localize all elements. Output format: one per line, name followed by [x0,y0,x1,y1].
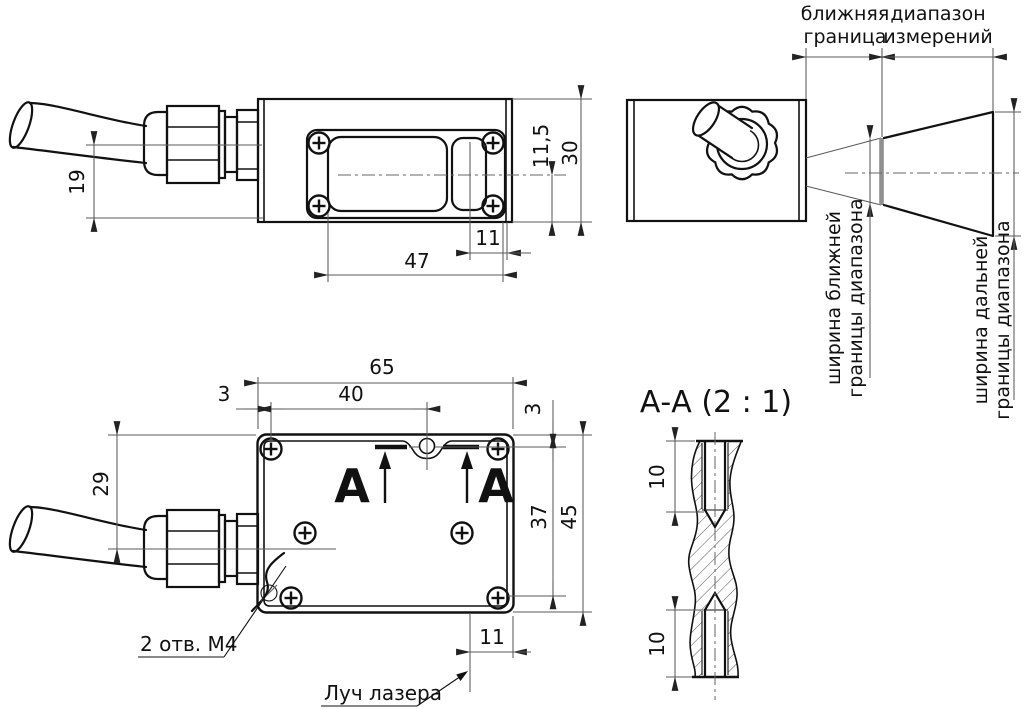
far-width-label-1: ширина дальней [970,236,992,405]
note-mounting-holes: 2 отв. М4 [140,632,237,656]
section-view: А-А (2 : 1) 10 [640,385,792,700]
dim-thread-depth-bottom: 10 [645,631,669,656]
cable [5,100,146,163]
section-letter-left: А [334,459,370,513]
screw-icon [483,133,504,154]
far-width-label-2: границы диапазона [992,220,1014,419]
dim-edge-to-section: 3 [521,403,545,416]
screw-icon [295,523,316,544]
dim-height: 30 [558,140,582,165]
dim-axis-to-bottom: 11,5 [529,124,553,169]
laser-window [452,138,486,210]
dim-window-to-edge: 11 [475,226,500,250]
cable [5,504,146,567]
cable-gland-rear [688,98,777,179]
dim-cable-axis: 19 [65,169,89,194]
range-cone [884,112,993,236]
dim-edge-to-screw: 3 [218,382,231,406]
technical-drawing-canvas: 19 11,5 30 11 47 [0,0,1024,709]
dim-length: 65 [369,355,394,379]
front-view-dimensions: ближняя граница диапазон измерений ширин… [801,3,1021,420]
dim-screw-rows: 37 [527,504,551,529]
side-view: 19 11,5 30 11 47 [5,99,592,282]
near-width-label-2: границы диапазона [845,198,867,397]
dim-beam-to-edge: 11 [479,625,504,649]
dim-window-width: 47 [404,249,429,273]
near-boundary-label-1: ближняя [801,3,890,25]
screw-icon [309,133,330,154]
near-width-label-1: ширина ближней [823,211,845,385]
top-view: А А 65 3 40 29 [5,355,592,706]
screw-icon [483,196,504,217]
leader-arrowhead [456,671,468,681]
section-cut: А А [334,447,514,513]
range-label-2: измерений [883,26,992,48]
dim-top-to-cable-axis: 29 [89,471,113,496]
section-title: А-А (2 : 1) [640,385,792,420]
dim-screw-to-hole: 40 [338,382,363,406]
faceplate [307,130,505,218]
screw-icon [452,523,473,544]
section-letter-right: А [478,459,514,513]
dim-thread-depth-top: 10 [645,464,669,489]
enclosure [258,99,512,222]
front-view: ближняя граница диапазон измерений ширин… [627,3,1021,420]
dim-width: 45 [557,504,581,529]
screw-icon [309,196,330,217]
near-boundary-label-2: граница [803,26,886,48]
range-label-1: диапазон [890,3,985,25]
receiver-window [328,137,447,211]
drawing-page: 19 11,5 30 11 47 [0,0,1024,709]
